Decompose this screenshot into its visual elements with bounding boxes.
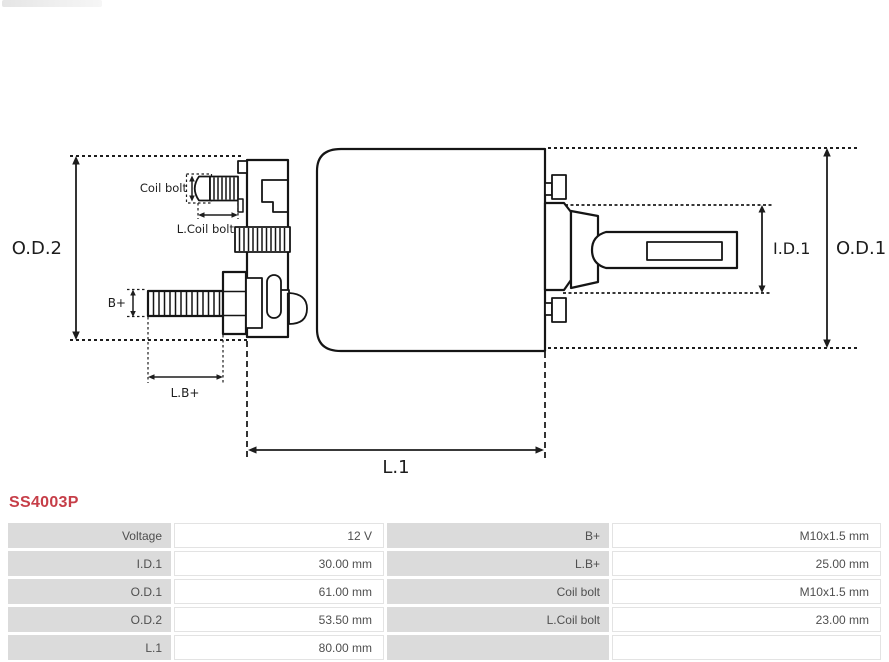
lbplus-dimension	[148, 374, 223, 380]
solenoid-diagram: O.D.2 O.D.1 I.D.1 L.1 Coil bolt L.Coil b…	[0, 0, 889, 495]
terminal-tab-top	[545, 175, 566, 199]
coil-bolt	[195, 177, 243, 213]
plunger-flange-inner	[545, 203, 571, 290]
spec-label-cell: L.1	[8, 635, 171, 660]
b-plus-label: B+	[108, 296, 126, 310]
spec-label-cell: Coil bolt	[387, 579, 609, 604]
l1-label: L.1	[382, 457, 409, 478]
id1-label: I.D.1	[773, 239, 810, 258]
l1-dimension	[248, 446, 544, 453]
l-coil-bolt-label: L.Coil bolt	[177, 222, 235, 236]
spec-label-cell: I.D.1	[8, 551, 171, 576]
spec-label-cell: O.D.2	[8, 607, 171, 632]
shaft-slot	[647, 242, 722, 260]
tab-body	[552, 298, 566, 322]
spec-label-cell: L.Coil bolt	[387, 607, 609, 632]
spec-value-cell: 80.00 mm	[174, 635, 384, 660]
terminal-tab-bottom	[545, 298, 566, 322]
solenoid-body	[317, 149, 545, 351]
page: O.D.2 O.D.1 I.D.1 L.1 Coil bolt L.Coil b…	[0, 0, 889, 662]
spec-value-cell: M10x1.5 mm	[612, 579, 881, 604]
spec-value-cell: 25.00 mm	[612, 551, 881, 576]
lcoilbolt-dimension	[198, 212, 238, 218]
spec-table: Voltage 12 V B+ M10x1.5 mm I.D.1 30.00 m…	[8, 523, 881, 660]
spec-label-cell: O.D.1	[8, 579, 171, 604]
solenoid-drawing	[148, 149, 737, 351]
spec-value-cell: 30.00 mm	[174, 551, 384, 576]
spec-value-cell: 23.00 mm	[612, 607, 881, 632]
spec-value-cell: 61.00 mm	[174, 579, 384, 604]
od2-label: O.D.2	[12, 238, 62, 259]
bplus-dimension	[130, 290, 136, 318]
id1-dimension	[759, 205, 766, 293]
spec-value-cell	[612, 635, 881, 660]
spacer-capsule	[267, 275, 281, 318]
od1-label: O.D.1	[836, 238, 886, 259]
od1-dimension	[823, 148, 831, 348]
tab-stub	[545, 303, 552, 315]
spec-label-cell: Voltage	[8, 523, 171, 548]
part-number: SS4003P	[9, 494, 79, 512]
spec-value-cell: 53.50 mm	[174, 607, 384, 632]
coil-bolt-root	[238, 199, 243, 212]
coil-stud	[235, 227, 290, 252]
l-b-plus-label: L.B+	[171, 386, 200, 400]
spec-value-cell: M10x1.5 mm	[612, 523, 881, 548]
lbplus-extensions	[148, 317, 223, 383]
bplus-bolt	[148, 272, 281, 334]
hex-nut	[223, 272, 246, 334]
tab-stub	[545, 183, 552, 195]
spec-label-cell: B+	[387, 523, 609, 548]
spec-label-cell	[387, 635, 609, 660]
spec-label-cell: L.B+	[387, 551, 609, 576]
spec-value-cell: 12 V	[174, 523, 384, 548]
od2-dimension	[72, 156, 80, 340]
front-cap-tab	[238, 161, 247, 173]
washer	[246, 278, 262, 328]
coil-bolt-label: Coil bolt	[140, 181, 188, 195]
coil-bolt-head	[195, 177, 210, 201]
tab-body	[552, 175, 566, 199]
bplus-extensions	[127, 290, 147, 317]
